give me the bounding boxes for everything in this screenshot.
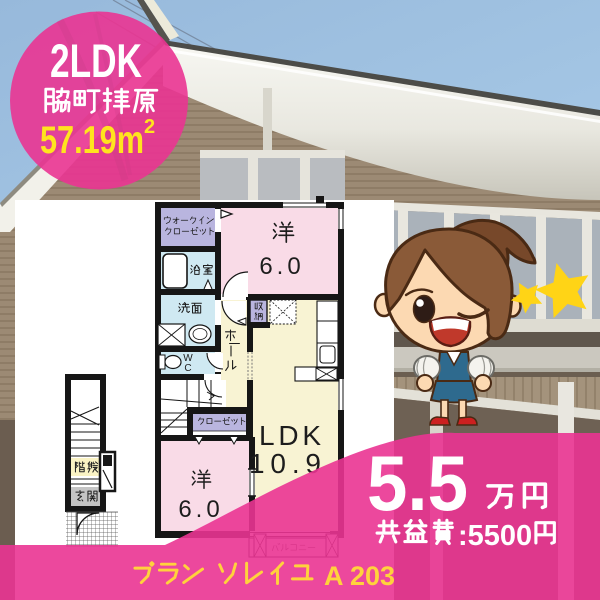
svg-text:6.0: 6.0 [259, 253, 304, 280]
svg-text::5500: :5500 [458, 520, 532, 552]
svg-text:2: 2 [144, 116, 155, 138]
svg-text:57.19m: 57.19m [40, 119, 144, 162]
svg-text:5.5: 5.5 [367, 439, 468, 527]
svg-text:LDK: LDK [259, 420, 326, 451]
svg-text:2LDK: 2LDK [50, 34, 142, 87]
svg-text:C: C [184, 363, 191, 374]
svg-text:A 203: A 203 [324, 561, 395, 591]
